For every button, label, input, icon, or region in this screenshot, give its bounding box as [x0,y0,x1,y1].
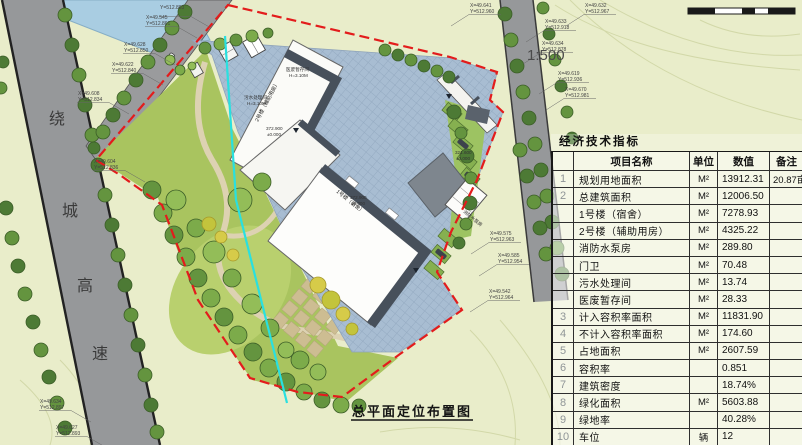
svg-text:Y=512.936: Y=512.936 [558,77,583,83]
svg-text:Y=512.964: Y=512.964 [489,295,514,301]
svg-text:Y=512.960: Y=512.960 [470,9,495,15]
tree-icon [202,289,220,307]
tree-icon [379,44,391,56]
tree-icon [336,307,350,321]
tree-icon [230,34,242,46]
tree-icon [504,33,518,47]
table-cell-remark [770,376,802,393]
table-cell-name: 2号楼（辅助用房） [574,222,690,239]
table-cell-name: 占地面积 [574,342,690,359]
table-cell-name: 不计入容积率面积 [574,325,690,342]
scale-text: 1:500 [527,47,565,64]
tree-icon [537,2,549,14]
tree-icon [392,49,404,61]
tree-icon [11,259,25,273]
table-cell-unit: M² [690,342,718,359]
table-cell-remark: 20.87亩 [770,170,802,187]
table-cell-unit: M² [690,239,718,256]
tree-icon [455,127,467,139]
table-cell-unit [690,359,718,376]
tree-icon [405,54,417,66]
svg-text:Y=512.918: Y=512.918 [545,25,570,31]
row-number: 9 [553,411,574,428]
table-cell-unit: M² [690,204,718,221]
table-cell-name: 规划用地面积 [574,170,690,187]
table-header-cell: 单位 [690,152,718,170]
tree-icon [346,323,358,335]
tree-icon [0,201,13,215]
tree-icon [58,8,72,22]
table-cell-remark [770,411,802,428]
row-number: 5 [553,342,574,359]
tree-icon [202,217,216,231]
tree-icon [141,55,155,69]
table-cell-remark [770,325,802,342]
tree-icon [322,291,340,309]
row-number: 1 [553,170,574,187]
svg-text:Y=512.850: Y=512.850 [124,48,149,54]
elevation-zero: ±0.000 [267,132,281,137]
tree-icon [34,343,48,357]
tree-icon [520,169,534,183]
row-number: 4 [553,325,574,342]
table-cell-name: 总建筑面积 [574,187,690,204]
elevation-value: 372.900 [266,126,283,131]
table-cell-name: 车位 [574,428,690,445]
tree-icon [561,106,573,118]
tree-icon [453,237,465,249]
tree-icon [310,277,326,293]
tree-icon [291,351,309,369]
tree-icon [65,38,79,52]
svg-text:Y=512.861: Y=512.861 [146,21,171,27]
tree-icon [418,60,430,72]
table-cell-unit: M² [690,256,718,273]
svg-text:Y=512.967: Y=512.967 [585,9,610,15]
economic-indicators-panel: 经济技术指标 项目名称单位数值备注1规划用地面积M²13912.3120.87亩… [551,134,802,445]
table-cell-name: 医废暂存间 [574,290,690,307]
svg-text:Y=512.963: Y=512.963 [490,237,515,243]
tree-icon [18,287,32,301]
tree-icon [0,56,9,68]
table-cell-remark [770,187,802,204]
table-cell-name: 容积率 [574,359,690,376]
row-number: 2 [553,187,574,204]
table-header-cell: 数值 [718,152,770,170]
tree-icon [528,137,542,151]
table-cell-value: 7278.93 [718,204,770,221]
table-cell-value: 70.48 [718,256,770,273]
tree-icon [260,359,278,377]
table-cell-remark [770,239,802,256]
table-cell-name: 绿化面积 [574,393,690,410]
svg-text:Y=512.981: Y=512.981 [565,93,590,99]
svg-text:Y=512.883: Y=512.883 [160,5,185,11]
row-number [553,256,574,273]
medical-room-height: H=3.10M [289,73,308,78]
table-cell-name: 绿地率 [574,411,690,428]
row-number [553,273,574,290]
tree-icon [72,68,86,82]
table-cell-unit: M² [690,308,718,325]
row-number: 6 [553,359,574,376]
tree-icon [5,231,19,245]
table-cell-remark [770,256,802,273]
table-cell-name: 门卫 [574,256,690,273]
table-cell-value: 40.28% [718,411,770,428]
table-cell-value: 12 [718,428,770,445]
table-cell-name: 建筑密度 [574,376,690,393]
tree-icon [522,111,536,125]
table-cell-value: 5603.88 [718,393,770,410]
medical-room-label: 医废暂存间 [286,66,309,73]
table-cell-name: 1号楼（宿舍） [574,204,690,221]
svg-text:Y=512.954: Y=512.954 [498,259,523,265]
tree-icon [188,62,196,70]
tree-icon [175,65,185,75]
tree-icon [447,105,461,119]
table-cell-remark [770,393,802,410]
tree-icon [223,269,241,287]
expressway-label-char: 绕 [49,110,65,128]
tree-icon [263,28,273,38]
tree-icon [118,278,132,292]
tree-icon [138,368,152,382]
table-cell-name: 计入容积率面积 [574,308,690,325]
tree-icon [199,42,211,54]
table-title: 经济技术指标 [551,134,802,151]
table-cell-remark [770,273,802,290]
tree-icon [534,163,548,177]
tree-icon [246,30,258,42]
tree-icon [96,125,110,139]
table-cell-remark [770,308,802,325]
table-cell-unit: 辆 [690,428,718,445]
tree-icon [150,425,164,439]
sewage-room-label: 污水处理间 [244,94,267,101]
tree-icon [227,249,239,261]
tree-icon [244,343,262,361]
tree-icon [215,308,233,326]
tree-icon [105,218,119,232]
tree-icon [215,231,227,243]
table-cell-remark [770,222,802,239]
tree-icon [310,364,326,380]
table-cell-value: 0.851 [718,359,770,376]
tree-icon [516,85,530,99]
table-cell-value: 289.80 [718,239,770,256]
tree-icon [333,397,349,413]
table-cell-unit: M² [690,187,718,204]
svg-text:Y=512.893: Y=512.893 [56,431,81,437]
tree-icon [460,218,472,230]
row-number: 7 [553,376,574,393]
table-cell-name: 污水处理间 [574,273,690,290]
table-cell-remark [770,342,802,359]
tree-icon [278,342,294,358]
row-number [553,290,574,307]
pump-zero: ±0.000 [456,156,470,161]
tree-icon [26,315,40,329]
site-plan-screenshot: 污水处理间 H=3.10M 医废暂存间 H=3.10M 372.900 ±0.0… [0,0,802,445]
svg-text:Y=512.840: Y=512.840 [112,68,137,74]
scale-bar [688,8,795,14]
table-cell-remark [770,290,802,307]
tree-icon [229,326,247,344]
tree-icon [117,91,131,105]
table-cell-value: 13.74 [718,273,770,290]
table-cell-unit: M² [690,222,718,239]
table-cell-unit: M² [690,325,718,342]
table-cell-unit [690,376,718,393]
tree-icon [131,338,145,352]
table-cell-unit: M² [690,273,718,290]
tree-icon [88,142,100,154]
tree-icon [527,195,541,209]
tree-icon [111,248,125,262]
table-cell-remark [770,204,802,221]
tree-icon [42,370,56,384]
tree-icon [124,308,138,322]
table-cell-unit [690,411,718,428]
expressway-label-char: 高 [77,277,93,295]
table-header-cell: 备注 [770,152,802,170]
table-cell-value: 2607.59 [718,342,770,359]
pump-elevation: 321.600 [455,150,472,155]
tree-icon [189,269,207,287]
table-cell-name: 消防水泵房 [574,239,690,256]
tree-icon [153,38,167,52]
table-cell-unit: M² [690,290,718,307]
tree-icon [431,65,443,77]
tree-icon [129,73,143,87]
row-number: 10 [553,428,574,445]
tree-icon [533,221,547,235]
tree-icon [443,71,455,83]
table-cell-unit: M² [690,170,718,187]
tree-icon [166,190,186,210]
tree-icon [228,188,252,212]
tree-icon [253,173,271,191]
tree-icon [144,398,158,412]
tree-icon [510,59,524,73]
tree-icon [498,7,512,21]
table-header-cell: 项目名称 [574,152,690,170]
row-number: 8 [553,393,574,410]
svg-text:Y=512.836: Y=512.836 [94,165,119,171]
table-cell-value: 18.74% [718,376,770,393]
svg-text:Y=512.834: Y=512.834 [78,97,103,103]
table-cell-unit: M² [690,393,718,410]
tree-icon [98,188,112,202]
economic-indicators-table: 项目名称单位数值备注1规划用地面积M²13912.3120.87亩2总建筑面积M… [551,151,802,445]
row-number: 3 [553,308,574,325]
expressway-label-char: 速 [92,345,108,363]
row-number [553,204,574,221]
tree-icon [513,143,527,157]
row-number [553,239,574,256]
tree-icon [242,294,262,314]
table-cell-value: 11831.90 [718,308,770,325]
table-cell-remark [770,359,802,376]
tree-icon [203,241,225,263]
table-cell-value: 174.60 [718,325,770,342]
table-cell-value: 12006.50 [718,187,770,204]
expressway-label-char: 城 [62,202,78,220]
table-cell-value: 28.33 [718,290,770,307]
tree-icon [143,181,161,199]
drawing-title-block: 总平面定位布置图 [351,404,473,420]
table-cell-value: 13912.31 [718,170,770,187]
table-cell-value: 4325.22 [718,222,770,239]
row-number [553,222,574,239]
table-cell-remark [770,428,802,445]
tree-icon [106,108,120,122]
drawing-title: 总平面定位布置图 [352,404,472,419]
table-header-index [553,152,574,170]
svg-text:Y=512.897: Y=512.897 [40,405,65,411]
